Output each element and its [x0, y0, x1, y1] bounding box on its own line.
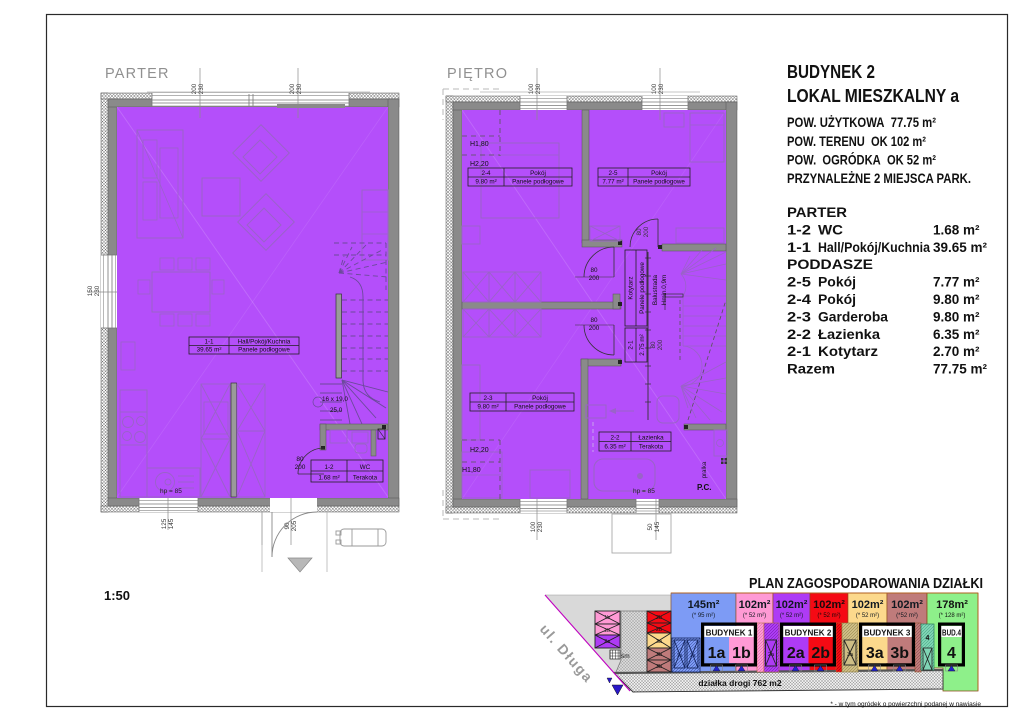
svg-text:102m²: 102m² [739, 599, 771, 611]
svg-text:200: 200 [657, 339, 664, 350]
svg-text:3b: 3b [656, 652, 662, 658]
svg-text:3a: 3a [866, 645, 884, 662]
svg-text:230: 230 [658, 83, 665, 94]
svg-text:2-4: 2-4 [787, 292, 812, 307]
svg-text:230: 230 [198, 83, 205, 94]
svg-text:230: 230 [296, 83, 303, 94]
svg-text:WC: WC [360, 464, 371, 471]
svg-text:PIĘTRO: PIĘTRO [447, 66, 508, 82]
svg-text:Pokój: Pokój [530, 170, 546, 177]
svg-text:Kotytarz: Kotytarz [818, 344, 878, 359]
svg-text:9.80 m²: 9.80 m² [933, 292, 980, 307]
svg-text:200: 200 [589, 325, 600, 332]
svg-text:(* 52 m²): (* 52 m²) [780, 613, 803, 619]
svg-text:H1,80: H1,80 [470, 141, 489, 148]
svg-text:Hmin.0,9m: Hmin.0,9m [661, 275, 668, 305]
svg-text:4: 4 [926, 635, 930, 642]
svg-text:1-1: 1-1 [204, 338, 214, 345]
svg-text:100: 100 [651, 83, 658, 94]
svg-text:BUDYNEK 2: BUDYNEK 2 [785, 629, 832, 638]
svg-text:9.80 m²: 9.80 m² [477, 403, 498, 410]
svg-text:1b: 1b [604, 628, 610, 634]
svg-text:125: 125 [161, 518, 168, 529]
svg-text:Łazienka: Łazienka [638, 434, 664, 441]
svg-text:200: 200 [295, 464, 306, 471]
svg-text:2-1: 2-1 [787, 344, 812, 359]
svg-text:80: 80 [296, 456, 304, 463]
svg-text:1.68 m²: 1.68 m² [318, 474, 339, 481]
svg-text:2-5: 2-5 [608, 170, 618, 177]
svg-text:80: 80 [590, 267, 598, 274]
svg-text:6.35 m²: 6.35 m² [604, 443, 625, 450]
svg-text:1a: 1a [689, 653, 696, 659]
svg-text:230: 230 [94, 285, 101, 296]
svg-text:6.35 m²: 6.35 m² [933, 327, 980, 342]
svg-text:1a: 1a [676, 653, 683, 659]
svg-text:80: 80 [636, 228, 643, 236]
svg-text:102m²: 102m² [776, 599, 808, 611]
svg-text:2-2: 2-2 [787, 327, 811, 342]
svg-text:145m²: 145m² [688, 599, 720, 611]
svg-text:Razem: Razem [787, 362, 835, 377]
svg-text:2.70 m²: 2.70 m² [933, 344, 980, 359]
svg-text:Terakota: Terakota [353, 474, 378, 481]
svg-text:śm: śm [621, 653, 630, 660]
svg-text:3a: 3a [656, 639, 663, 645]
svg-text:H2,20: H2,20 [470, 447, 489, 454]
svg-text:P.C.: P.C. [697, 483, 712, 492]
svg-text:BUD.4: BUD.4 [942, 629, 961, 638]
svg-text:(* 52 m²): (* 52 m²) [817, 613, 840, 619]
svg-text:Garderoba: Garderoba [818, 309, 888, 324]
svg-text:102m²: 102m² [852, 599, 884, 611]
svg-text:PARTER: PARTER [105, 66, 170, 82]
svg-text:9.80 m²: 9.80 m² [933, 309, 980, 324]
svg-text:1b: 1b [604, 615, 610, 621]
svg-text:2b: 2b [656, 615, 662, 621]
svg-text:77.75 m²: 77.75 m² [933, 362, 988, 377]
svg-text:Panele podłogowe: Panele podłogowe [639, 262, 646, 314]
svg-text:1b: 1b [732, 645, 751, 662]
svg-text:90: 90 [284, 522, 291, 530]
svg-text:200: 200 [643, 226, 650, 237]
svg-text:39.65 m²: 39.65 m² [933, 240, 988, 255]
svg-text:Pokój: Pokój [818, 275, 856, 290]
svg-text:1a: 1a [708, 645, 726, 662]
svg-text:hp = 85: hp = 85 [160, 488, 182, 495]
svg-text:102m²: 102m² [891, 599, 923, 611]
svg-text:2.75 m²: 2.75 m² [639, 334, 646, 355]
svg-text:100: 100 [528, 83, 535, 94]
svg-text:2b: 2b [656, 627, 662, 633]
svg-text:3a: 3a [847, 652, 854, 658]
svg-text:BUDYNEK 2: BUDYNEK 2 [787, 62, 875, 82]
svg-text:Panele podłogowe: Panele podłogowe [633, 178, 685, 185]
svg-text:H2,20: H2,20 [470, 161, 489, 168]
svg-text:PRZYNALEŻNE 2 MIEJSCA PARK.: PRZYNALEŻNE 2 MIEJSCA PARK. [787, 170, 971, 186]
svg-text:230: 230 [535, 83, 542, 94]
svg-text:39.65 m²: 39.65 m² [197, 346, 222, 353]
svg-text:3b: 3b [656, 664, 662, 670]
svg-text:działka drogi 762 m2: działka drogi 762 m2 [698, 678, 781, 688]
svg-text:hp = 85: hp = 85 [633, 488, 655, 495]
svg-text:* - w tym ogródek o powierzchn: * - w tym ogródek o powierzchni podanej … [830, 701, 981, 708]
svg-text:2-1: 2-1 [628, 340, 635, 350]
svg-text:Balustrada: Balustrada [652, 274, 659, 305]
svg-text:(*52 m²): (*52 m²) [896, 613, 918, 619]
svg-text:2-2: 2-2 [610, 434, 620, 441]
svg-text:Panele podłogowe: Panele podłogowe [512, 178, 564, 185]
svg-text:Kotytarz: Kotytarz [628, 276, 635, 299]
svg-text:pralka: pralka [702, 461, 708, 478]
svg-text:150: 150 [87, 285, 94, 296]
svg-text:1:50: 1:50 [104, 588, 130, 603]
svg-text:1-1: 1-1 [787, 240, 812, 255]
svg-text:Panele podłogowe: Panele podłogowe [238, 346, 290, 353]
svg-text:3b: 3b [890, 645, 909, 662]
svg-text:1-2: 1-2 [787, 222, 811, 237]
svg-text:H1,80: H1,80 [462, 467, 481, 474]
svg-text:Hall/Pokój/Kuchnia: Hall/Pokój/Kuchnia [238, 338, 291, 345]
svg-text:Panele podłogowe: Panele podłogowe [514, 403, 566, 410]
svg-text:16 x 19,0: 16 x 19,0 [322, 396, 348, 403]
svg-text:POW. OGRÓDKA OK 52 m²: POW. OGRÓDKA OK 52 m² [787, 151, 936, 168]
svg-text:2a: 2a [604, 639, 611, 645]
svg-text:200: 200 [289, 83, 296, 94]
svg-text:4: 4 [947, 645, 956, 662]
svg-text:BUDYNEK 3: BUDYNEK 3 [864, 629, 911, 638]
svg-text:7.77 m²: 7.77 m² [933, 275, 980, 290]
svg-text:2-4: 2-4 [481, 170, 491, 177]
svg-text:178m²: 178m² [936, 599, 968, 611]
svg-text:2b: 2b [811, 645, 830, 662]
svg-text:145: 145 [654, 521, 661, 532]
svg-text:2a: 2a [787, 645, 805, 662]
svg-text:100: 100 [530, 521, 537, 532]
svg-text:PLAN ZAGOSPODAROWANIA DZIAŁKI: PLAN ZAGOSPODAROWANIA DZIAŁKI [749, 576, 983, 592]
svg-text:50: 50 [647, 523, 654, 531]
svg-text:POW. TERENU OK 102 m²: POW. TERENU OK 102 m² [787, 133, 926, 149]
svg-text:Hall/Pokój/Kuchnia: Hall/Pokój/Kuchnia [818, 240, 930, 255]
svg-text:Pokój: Pokój [651, 170, 667, 177]
svg-text:Pokój: Pokój [532, 395, 548, 402]
svg-text:Łazienka: Łazienka [818, 327, 881, 342]
svg-text:145: 145 [168, 518, 175, 529]
svg-text:200: 200 [589, 275, 600, 282]
svg-text:205: 205 [291, 520, 298, 531]
svg-text:(* 52 m²): (* 52 m²) [743, 613, 766, 619]
svg-text:7.77 m²: 7.77 m² [602, 178, 623, 185]
svg-text:2-5: 2-5 [787, 275, 812, 290]
svg-text:PARTER: PARTER [787, 205, 847, 220]
svg-text:WC: WC [818, 222, 843, 237]
svg-text:1-2: 1-2 [324, 464, 334, 471]
svg-text:25,0: 25,0 [330, 407, 343, 414]
svg-text:1.68 m²: 1.68 m² [933, 222, 980, 237]
svg-text:POW. UŻYTKOWA 77.75 m²: POW. UŻYTKOWA 77.75 m² [787, 114, 936, 130]
svg-text:Terakota: Terakota [639, 443, 664, 450]
svg-text:PODDASZE: PODDASZE [787, 257, 873, 272]
svg-text:BUDYNEK 1: BUDYNEK 1 [706, 629, 753, 638]
svg-text:200: 200 [191, 83, 198, 94]
svg-text:9.80 m²: 9.80 m² [475, 178, 496, 185]
svg-text:80: 80 [590, 317, 598, 324]
svg-text:(* 52 m²): (* 52 m²) [856, 613, 879, 619]
svg-text:(* 128 m²): (* 128 m²) [939, 613, 966, 619]
svg-text:230: 230 [537, 521, 544, 532]
svg-text:(* 95 m²): (* 95 m²) [692, 613, 715, 619]
svg-text:2a: 2a [768, 652, 775, 658]
svg-text:80: 80 [650, 341, 657, 349]
svg-text:2-3: 2-3 [483, 395, 493, 402]
svg-text:2-3: 2-3 [787, 309, 812, 324]
svg-text:Pokój: Pokój [818, 292, 856, 307]
svg-text:LOKAL MIESZKALNY a: LOKAL MIESZKALNY a [787, 86, 960, 106]
svg-text:102m²: 102m² [813, 599, 845, 611]
